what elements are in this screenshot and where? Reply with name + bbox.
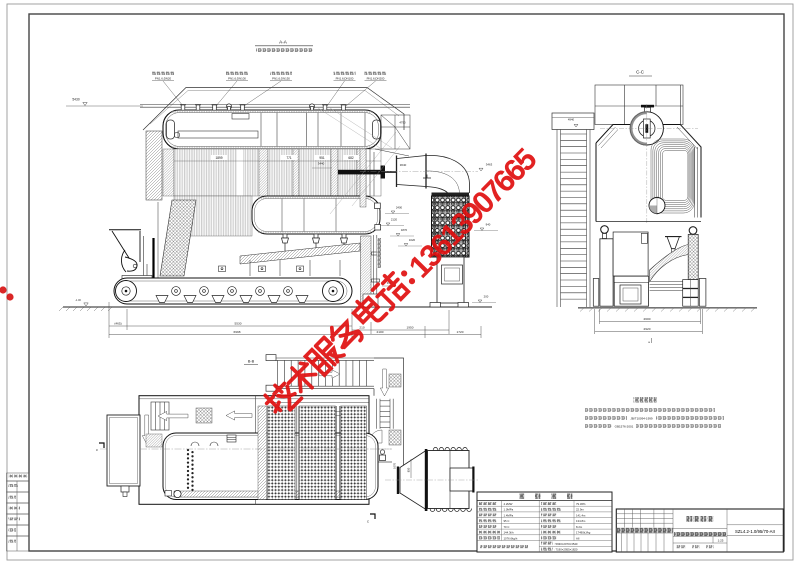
svg-text:1720: 1720 xyxy=(457,330,464,334)
svg-text:(465): (465) xyxy=(114,322,121,326)
svg-text:PN1.6;DN200: PN1.6;DN200 xyxy=(367,77,385,81)
svg-text:682: 682 xyxy=(348,156,354,160)
svg-text:8.2m: 8.2m xyxy=(576,525,583,529)
svg-text:: 7190×2955×1820: : 7190×2955×1820 xyxy=(554,548,578,552)
svg-text:3463: 3463 xyxy=(486,163,493,167)
svg-text:A-A: A-A xyxy=(279,40,288,45)
svg-text:1070: 1070 xyxy=(393,463,397,469)
svg-text:C-C: C-C xyxy=(636,70,644,75)
svg-text:4.2MW: 4.2MW xyxy=(504,502,513,506)
svg-text:951: 951 xyxy=(319,156,325,160)
svg-text:SZL4.2-1.0/95/70-AII: SZL4.2-1.0/95/70-AII xyxy=(735,529,775,534)
svg-text:6998: 6998 xyxy=(234,330,241,334)
svg-text:17490kJ/kg: 17490kJ/kg xyxy=(576,531,591,535)
svg-text:2600: 2600 xyxy=(644,317,651,321)
svg-text:2100: 2100 xyxy=(377,330,384,334)
svg-text:1.4MPa: 1.4MPa xyxy=(504,513,514,517)
svg-text:: 5930×2070×3540: : 5930×2070×3540 xyxy=(554,542,578,546)
svg-text:3640: 3640 xyxy=(400,163,407,167)
svg-text:c: c xyxy=(367,520,369,524)
svg-text:200: 200 xyxy=(484,295,489,299)
svg-text:79.36%: 79.36% xyxy=(576,502,586,506)
svg-text:4790: 4790 xyxy=(399,121,406,125)
svg-text:2400: 2400 xyxy=(396,206,403,210)
svg-text:GB1576-2001: GB1576-2001 xyxy=(615,424,634,428)
svg-text:5430: 5430 xyxy=(72,98,80,102)
svg-text:2120: 2120 xyxy=(391,218,398,222)
svg-text:144.3t/h: 144.3t/h xyxy=(504,531,515,535)
svg-text:B-B: B-B xyxy=(248,360,255,364)
svg-text:1950: 1950 xyxy=(407,326,414,330)
svg-text:1620: 1620 xyxy=(409,238,416,242)
svg-text:210: 210 xyxy=(359,326,364,330)
svg-text:JB/T10094-1999: JB/T10094-1999 xyxy=(630,416,653,420)
svg-text:134.8m: 134.8m xyxy=(576,519,586,523)
svg-text:141.4m: 141.4m xyxy=(576,513,586,517)
svg-text:771: 771 xyxy=(286,156,292,160)
svg-text:1899: 1899 xyxy=(215,156,222,160)
svg-text:PN1.6;DN20: PN1.6;DN20 xyxy=(155,77,172,81)
svg-text:1.0MPa: 1.0MPa xyxy=(504,508,514,512)
svg-text:1:25: 1:25 xyxy=(718,539,724,543)
svg-text:3440: 3440 xyxy=(318,162,325,166)
svg-text:95 C: 95 C xyxy=(504,519,510,523)
svg-text:c: c xyxy=(96,448,98,452)
svg-text:PN1.6;DN100: PN1.6;DN100 xyxy=(336,77,354,81)
svg-text:850: 850 xyxy=(407,467,411,472)
svg-text:4940: 4940 xyxy=(568,118,575,122)
svg-text:1076.6kg/h: 1076.6kg/h xyxy=(504,536,518,540)
svg-text:AII: AII xyxy=(576,536,580,540)
svg-text:PN1.6;DN100: PN1.6;DN100 xyxy=(228,77,246,81)
svg-text:2920: 2920 xyxy=(644,327,651,331)
svg-text:-1.00: -1.00 xyxy=(75,298,81,302)
svg-text:70 C: 70 C xyxy=(504,525,510,529)
svg-text:5530: 5530 xyxy=(235,322,242,326)
svg-text:1870: 1870 xyxy=(401,228,408,232)
svg-text:PN1.6;DN150: PN1.6;DN150 xyxy=(272,77,290,81)
svg-text:22.9m: 22.9m xyxy=(576,508,584,512)
